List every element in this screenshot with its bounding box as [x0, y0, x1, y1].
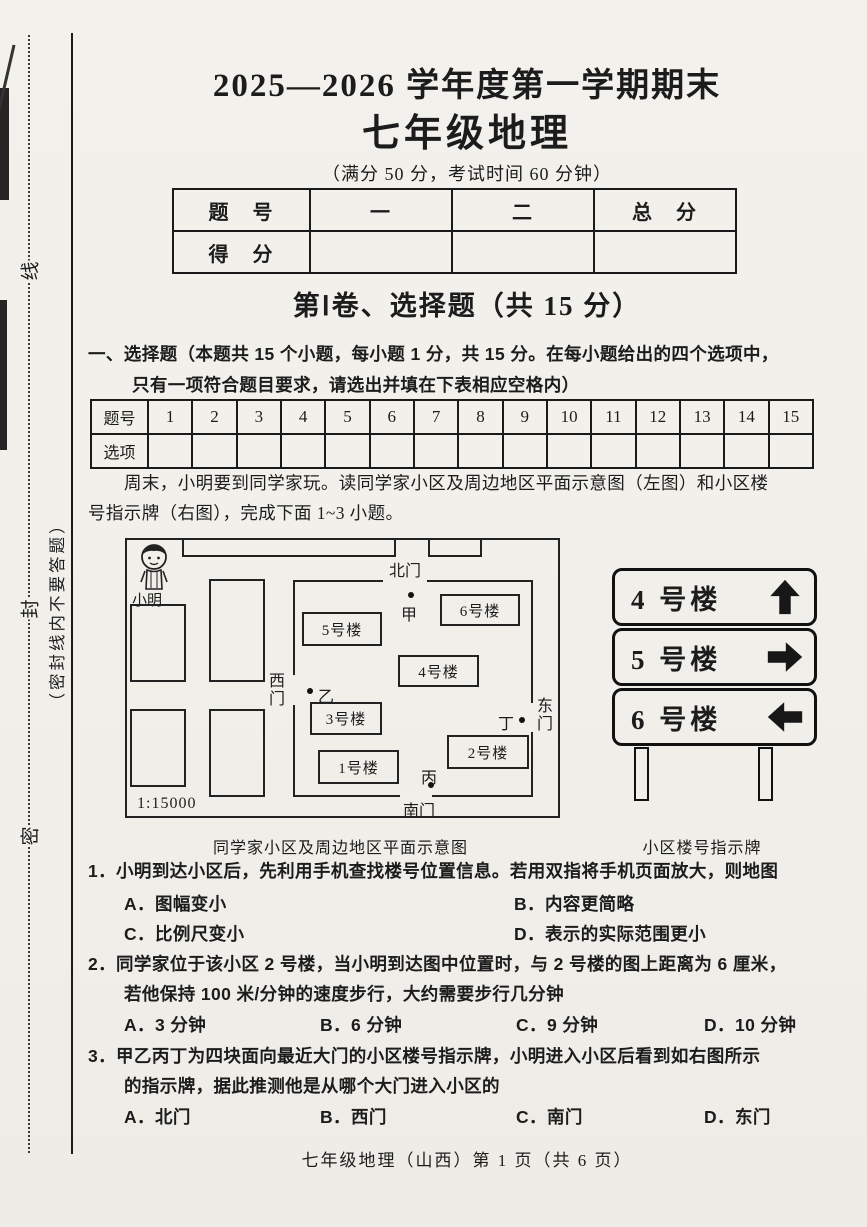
- question-3-option-a: A．北门: [124, 1104, 191, 1129]
- sign-caption: 小区楼号指示牌: [602, 834, 802, 858]
- point-bing-label: 丙: [421, 764, 437, 788]
- answer-grid-number: 13: [680, 400, 724, 434]
- answer-grid-cell: [237, 434, 281, 468]
- answer-grid-number: 9: [503, 400, 547, 434]
- west-gate-gap: [289, 675, 299, 705]
- arrow-right-icon: [767, 640, 803, 674]
- building-4: 4号楼: [398, 655, 479, 687]
- question-3-option-d: D．东门: [704, 1104, 771, 1129]
- outside-building: [209, 709, 265, 797]
- question-3-option-c: C．南门: [516, 1104, 583, 1129]
- sign-row-5-label: 5 号楼: [631, 638, 768, 677]
- east-gate-gap: [525, 703, 535, 732]
- answer-grid-cell: [370, 434, 414, 468]
- answer-grid-cell: [414, 434, 458, 468]
- answer-grid-cell: [636, 434, 680, 468]
- seal-dotted-line: [28, 35, 30, 1153]
- section1-instructions: 一、选择题（本题共 15 个小题，每小题 1 分，共 15 分。在每小题给出的四…: [88, 339, 833, 401]
- question-2-text-line1: 2．同学家位于该小区 2 号楼，当小明到达图中位置时，与 2 号楼的图上距离为 …: [88, 951, 787, 976]
- arrow-left-icon: [767, 700, 803, 734]
- answer-grid-cell: [325, 434, 369, 468]
- street-block: [428, 538, 482, 557]
- point-jia-marker: [408, 592, 414, 598]
- sign-row-5: 5 号楼: [612, 628, 817, 686]
- sign-row-6: 6 号楼: [612, 688, 817, 746]
- building-sign-figure: 4 号楼 5 号楼 6 号楼: [612, 568, 792, 796]
- sign-row-4: 4 号楼: [612, 568, 817, 626]
- answer-grid-number: 11: [591, 400, 635, 434]
- answer-grid-number: 8: [458, 400, 502, 434]
- section1-heading: 第Ⅰ卷、选择题（共 15 分）: [72, 284, 862, 323]
- answer-grid-cell: [148, 434, 192, 468]
- building-3: 3号楼: [310, 702, 382, 735]
- question-3-text-line1: 3．甲乙丙丁为四块面向最近大门的小区楼号指示牌，小明进入小区后看到如右图所示: [88, 1043, 760, 1068]
- exam-subject: 七年级地理: [72, 102, 862, 157]
- answer-grid-number: 10: [547, 400, 591, 434]
- question-2-option-d: D．10 分钟: [704, 1012, 796, 1037]
- answer-grid-cell: [547, 434, 591, 468]
- score-row-label: 得 分: [173, 231, 310, 273]
- answer-grid-number: 5: [325, 400, 369, 434]
- sign-row-4-label: 4 号楼: [631, 578, 768, 617]
- score-cell-empty: [594, 231, 736, 273]
- score-header-part2: 二: [452, 189, 594, 231]
- west-gate-label: 西门: [268, 673, 286, 709]
- answer-grid-number: 3: [237, 400, 281, 434]
- answer-grid-number: 14: [724, 400, 768, 434]
- seal-note: （密封线内不要答题）: [44, 515, 68, 710]
- answer-grid-number: 12: [636, 400, 680, 434]
- question-3-option-b: B．西门: [320, 1104, 387, 1129]
- north-gate-label: 北门: [389, 557, 421, 581]
- question-2-option-b: B．6 分钟: [320, 1012, 402, 1037]
- answer-grid-cell: [503, 434, 547, 468]
- score-cell-empty: [310, 231, 452, 273]
- point-ding-label: 丁: [498, 710, 514, 734]
- exam-paper-page: 线 封 密 （密封线内不要答题） 2025—2026 学年度第一学期期末 七年级…: [0, 0, 867, 1227]
- exam-title: 2025—2026 学年度第一学期期末: [72, 58, 862, 106]
- answer-grid-number: 15: [769, 400, 813, 434]
- answer-grid-row1-label: 题号: [91, 400, 148, 434]
- street-block: [182, 538, 396, 557]
- score-cell-empty: [452, 231, 594, 273]
- point-ding-marker: [519, 717, 525, 723]
- xiaoming-person-icon: [133, 542, 175, 590]
- building-5: 5号楼: [302, 612, 382, 646]
- passage-line-1: 周末，小明要到同学家玩。读同学家小区及周边地区平面示意图（左图）和小区楼: [88, 468, 836, 498]
- score-table: 题 号 一 二 总 分 得 分: [172, 188, 737, 274]
- question-2-text-line2: 若他保持 100 米/分钟的速度步行，大约需要步行几分钟: [124, 981, 564, 1006]
- answer-grid-cell: [591, 434, 635, 468]
- answer-grid-cell: [192, 434, 236, 468]
- outside-building: [209, 579, 265, 682]
- question-1-option-c: C．比例尺变小: [124, 921, 244, 946]
- answer-grid-number: 2: [192, 400, 236, 434]
- outside-building: [130, 604, 186, 682]
- answer-grid-cell: [281, 434, 325, 468]
- seal-char-feng: 封: [13, 598, 46, 619]
- building-1: 1号楼: [318, 750, 399, 784]
- question-2-option-a: A．3 分钟: [124, 1012, 206, 1037]
- arrow-up-icon: [768, 579, 802, 615]
- point-yi-marker: [307, 688, 313, 694]
- question-1-text: 1．小明到达小区后，先利用手机查找楼号位置信息。若用双指将手机页面放大，则地图: [88, 858, 778, 883]
- map-scale: 1:15000: [137, 795, 196, 813]
- instruction-line-2: 只有一项符合题目要求，请选出并填在下表相应空格内）: [88, 370, 833, 401]
- score-header-tihao: 题 号: [173, 189, 310, 231]
- answer-grid-cell: [680, 434, 724, 468]
- answer-grid-number: 4: [281, 400, 325, 434]
- seal-char-xian: 线: [13, 260, 46, 281]
- question-1-option-a: A．图幅变小: [124, 891, 227, 916]
- answer-grid-number: 6: [370, 400, 414, 434]
- page-footer: 七年级地理（山西）第 1 页（共 6 页）: [72, 1146, 862, 1171]
- sign-row-6-label: 6 号楼: [631, 698, 768, 737]
- east-gate-label: 东门: [536, 698, 554, 734]
- building-2: 2号楼: [447, 735, 529, 769]
- scan-edge-artifact: [0, 300, 7, 450]
- sign-leg: [758, 747, 773, 801]
- question-1-option-b: B．内容更简略: [514, 891, 634, 916]
- margin-rule-line: [71, 33, 73, 1154]
- question-3-text-line2: 的指示牌，据此推测他是从哪个大门进入小区的: [124, 1073, 500, 1098]
- point-jia-label: 甲: [401, 601, 417, 625]
- building-6: 6号楼: [440, 594, 520, 626]
- passage: 周末，小明要到同学家玩。读同学家小区及周边地区平面示意图（左图）和小区楼 号指示…: [88, 468, 836, 528]
- question-2-option-c: C．9 分钟: [516, 1012, 598, 1037]
- score-header-total: 总 分: [594, 189, 736, 231]
- instruction-line-1: 一、选择题（本题共 15 个小题，每小题 1 分，共 15 分。在每小题给出的四…: [88, 339, 833, 370]
- outside-building: [130, 709, 186, 787]
- answer-grid-table: 题号 1 2 3 4 5 6 7 8 9 10 11 12 13 14 15 选…: [90, 399, 814, 469]
- south-gate-label: 南门: [403, 797, 435, 821]
- answer-grid-number: 7: [414, 400, 458, 434]
- answer-grid-cell: [769, 434, 813, 468]
- answer-grid-number: 1: [148, 400, 192, 434]
- community-map-figure: 小明 北门 南门 西门 东门 甲 乙 丙 丁 5号楼 6号楼 4号楼 3号楼: [125, 538, 560, 818]
- passage-line-2: 号指示牌（右图），完成下面 1~3 小题。: [88, 498, 836, 528]
- score-header-part1: 一: [310, 189, 452, 231]
- sign-leg: [634, 747, 649, 801]
- map-caption: 同学家小区及周边地区平面示意图: [125, 834, 556, 858]
- question-1-option-d: D．表示的实际范围更小: [514, 921, 706, 946]
- answer-grid-cell: [724, 434, 768, 468]
- answer-grid-cell: [458, 434, 502, 468]
- seal-char-mi: 密: [13, 825, 46, 846]
- exam-score-time-note: （满分 50 分，考试时间 60 分钟）: [72, 160, 862, 186]
- answer-grid-row2-label: 选项: [91, 434, 148, 468]
